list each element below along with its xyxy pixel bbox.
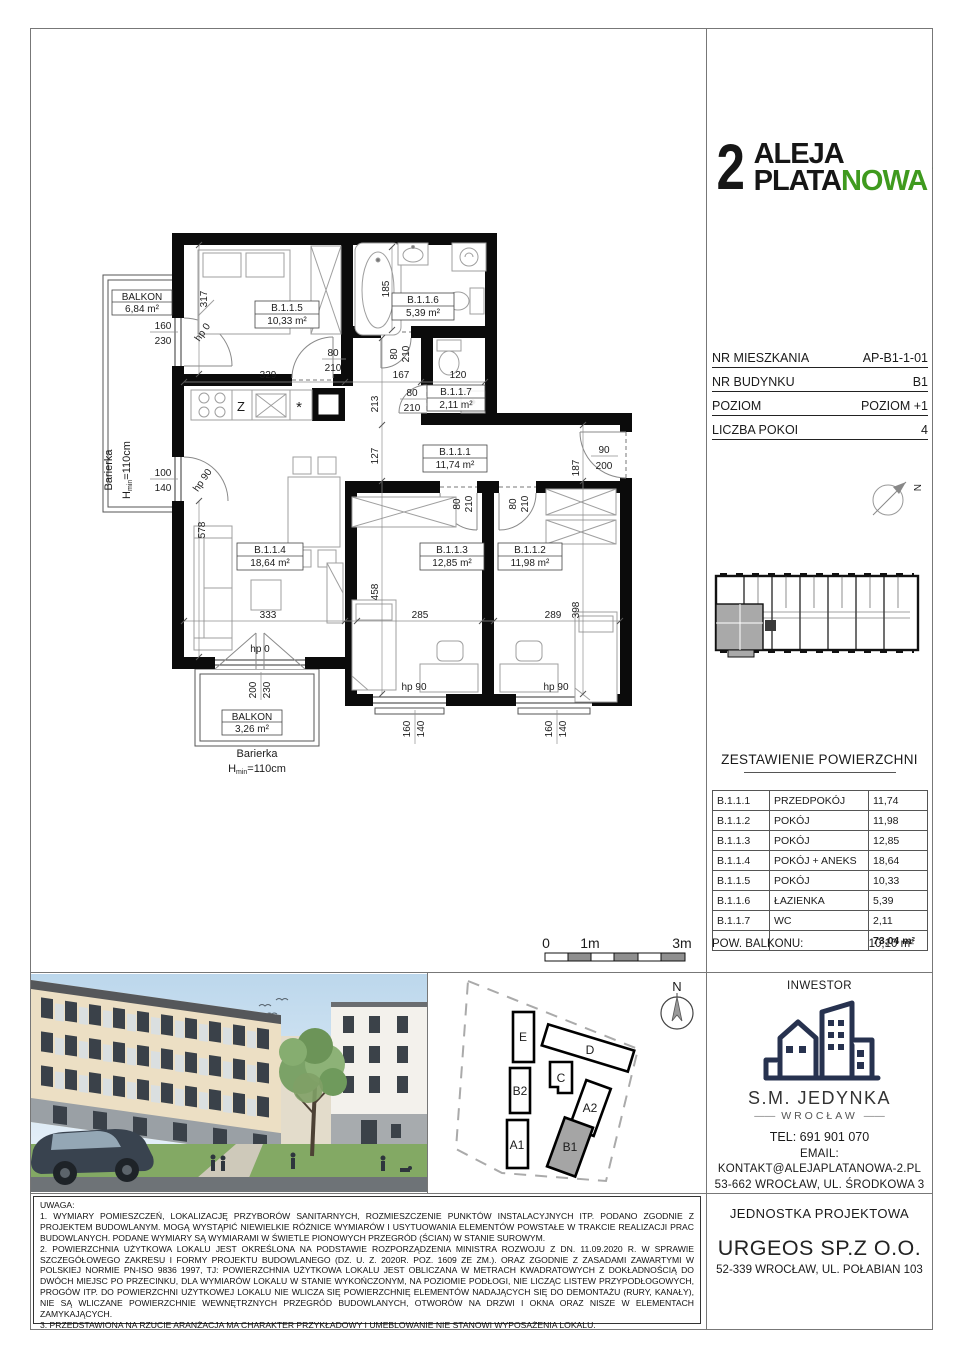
dim: 140 [155, 483, 172, 494]
kitchen-star: * [296, 399, 302, 416]
dim: 578 [197, 521, 208, 538]
dim: 285 [412, 610, 429, 621]
logo-line2-green: NOWA [841, 165, 927, 197]
areas-table-title: ZESTAWIENIE POWIERZCHNI [706, 752, 933, 767]
room-code: B.1.1.2 [713, 811, 770, 831]
kitchen-z-label: Z [237, 399, 245, 414]
dining-table [288, 477, 340, 547]
table-row: B.1.1.7WC2,11 [713, 911, 928, 931]
design-unit-address: 52-339 WROCŁAW, UL. POŁABIAN 103 [706, 1264, 933, 1276]
logo-line2-black: PLATA [754, 165, 841, 197]
info-value: 4 [921, 423, 928, 437]
info-row-apartment-number: NR MIESZKANIA AP-B1-1-01 [712, 342, 928, 368]
logo-line2: PLATANOWA [754, 168, 928, 195]
logo-number: 2 [717, 139, 745, 197]
toilet-wc [437, 340, 461, 351]
scale-3m: 3m [672, 935, 691, 951]
room-name: ŁAZIENKA [770, 891, 869, 911]
dash-left: —— [754, 1110, 775, 1122]
svg-text:B.1.1.1: B.1.1.1 [439, 447, 471, 458]
logo-line1: ALEJA [754, 141, 928, 168]
scale-0: 0 [542, 935, 550, 951]
info-row-building-number: NR BUDYNKU B1 [712, 366, 928, 392]
dim: 329 [260, 370, 277, 381]
svg-text:B.1.1.2: B.1.1.2 [514, 545, 546, 556]
dim: 160 [402, 720, 413, 737]
dim: 140 [416, 720, 427, 737]
room-area: 5,39 [869, 891, 928, 911]
svg-text:2,11 m²: 2,11 m² [439, 400, 473, 411]
dim: 210 [325, 363, 342, 374]
info-label: LICZBA POKOI [712, 423, 798, 437]
room-name: POKÓJ + ANEKS [770, 851, 869, 871]
balcony-label-bottom: BALKON 3,26 m² [222, 710, 282, 735]
investor-city: —— WROCŁAW —— [706, 1110, 933, 1122]
divider-horizontal-2 [30, 1193, 933, 1194]
svg-text:BALKON: BALKON [122, 292, 163, 303]
balcony-label-left: BALKON 6,84 m² [112, 290, 172, 315]
room-area: 12,85 [869, 831, 928, 851]
room-code: B.1.1.6 [713, 891, 770, 911]
dim: 80 [508, 498, 519, 510]
room-code: B.1.1.3 [713, 831, 770, 851]
label-a2: A2 [583, 1101, 598, 1115]
dim: 187 [571, 459, 582, 476]
room-code: B.1.1.1 [713, 791, 770, 811]
toilet-bathroom [470, 288, 484, 314]
table-row: B.1.1.4POKÓJ + ANEKS18,64 [713, 851, 928, 871]
logo-wordmark: ALEJA PLATANOWA [754, 141, 928, 194]
table-row: B.1.1.5POKÓJ10,33 [713, 871, 928, 891]
dim: 213 [370, 395, 381, 412]
svg-text:BALKON: BALKON [232, 712, 273, 723]
dim: 100 [155, 468, 172, 479]
svg-text:11,98 m²: 11,98 m² [511, 558, 550, 569]
hp-label: hp 0 [250, 644, 270, 655]
svg-text:B.1.1.7: B.1.1.7 [440, 387, 472, 398]
dim: 80 [327, 348, 339, 359]
design-unit-title: JEDNOSTKA PROJEKTOWA [706, 1206, 933, 1221]
brand-logo: 2 ALEJA PLATANOWA [708, 118, 933, 218]
building-photo [31, 974, 427, 1192]
north-arrow-icon: N [661, 979, 693, 1029]
notes-box: UWAGA: 1. WYMIARY POMIESZCZEŃ, LOKALIZAC… [33, 1196, 701, 1324]
building-overview-plan [712, 560, 926, 670]
barrier-word-horizontal: Barierka [237, 748, 279, 760]
table-row: B.1.1.6ŁAZIENKA5,39 [713, 891, 928, 911]
table-row: B.1.1.3POKÓJ12,85 [713, 831, 928, 851]
svg-text:B.1.1.6: B.1.1.6 [407, 295, 439, 306]
balcony-area-label: POW. BALKONU: [712, 938, 803, 950]
info-value: B1 [913, 375, 928, 389]
investor-name: S.M. JEDYNKA [706, 1088, 933, 1109]
tree-icon [932, 122, 933, 214]
label-d: D [586, 1043, 595, 1057]
dim: 210 [520, 495, 531, 512]
table-row: B.1.1.2POKÓJ11,98 [713, 811, 928, 831]
label-a1: A1 [510, 1138, 525, 1152]
room-label-b116: B.1.1.6 5,39 m² [392, 293, 454, 320]
room-name: WC [770, 911, 869, 931]
svg-text:B.1.1.3: B.1.1.3 [436, 545, 468, 556]
svg-text:6,84 m²: 6,84 m² [125, 304, 160, 315]
info-value: AP-B1-1-01 [863, 351, 928, 365]
floor-plan: 317 329 167 120 185 213 127 458 578 333 … [30, 28, 706, 972]
hp-label: hp 90 [401, 682, 426, 693]
investor-phone[interactable]: TEL: 691 901 070 [706, 1130, 933, 1144]
label-b1: B1 [563, 1140, 578, 1154]
room-area: 18,64 [869, 851, 928, 871]
stove-burner [199, 393, 209, 403]
areas-table: B.1.1.1PRZEDPOKÓJ11,74 B.1.1.2POKÓJ11,98… [712, 790, 928, 951]
balcony-area-value: 10,10 m² [869, 938, 914, 950]
scale-bar: 0 1m 3m [542, 935, 692, 961]
room-area: 10,33 [869, 871, 928, 891]
info-row-level: POZIOM POZIOM +1 [712, 390, 928, 416]
investor-city-label: WROCŁAW [781, 1110, 858, 1122]
dim: 120 [450, 370, 467, 381]
investor-address: 53-662 WROCŁAW, UL. ŚRODKOWA 3 [706, 1179, 933, 1191]
investor-email[interactable]: KONTAKT@ALEJAPLATANOWA-2.PL [706, 1163, 933, 1175]
scale-1m: 1m [580, 935, 599, 951]
room-code: B.1.1.7 [713, 911, 770, 931]
info-label: NR BUDYNKU [712, 375, 795, 389]
coffee-table [251, 580, 281, 610]
info-label: NR MIESZKANIA [712, 351, 809, 365]
dim: 333 [260, 610, 277, 621]
dim: 210 [464, 495, 475, 512]
dim: 458 [370, 583, 381, 600]
investor-email-label: EMAIL: [706, 1148, 933, 1160]
room-name: POKÓJ [770, 811, 869, 831]
dim: 185 [381, 280, 392, 297]
svg-text:3,26 m²: 3,26 m² [235, 724, 270, 735]
desk-chair [516, 641, 542, 661]
table-row: B.1.1.1PRZEDPOKÓJ11,74 [713, 791, 928, 811]
dim: 80 [452, 498, 463, 510]
tv-cabinet [327, 563, 343, 623]
dim: 230 [155, 336, 172, 347]
room-label-b117: B.1.1.7 2,11 m² [427, 385, 485, 411]
room-area: 11,98 [869, 811, 928, 831]
dim: 160 [544, 720, 555, 737]
room-label-b115: B.1.1.5 10,33 m² [255, 301, 319, 328]
svg-text:10,33 m²: 10,33 m² [267, 316, 307, 327]
chair [293, 457, 311, 474]
compass-letter: N [911, 484, 922, 491]
info-value: POZIOM +1 [861, 399, 928, 413]
north-letter: N [672, 979, 681, 994]
note-2: 2. POWIERZCHNIA UŻYTKOWA LOKALU JEST OKR… [40, 1244, 694, 1320]
dim: 140 [558, 720, 569, 737]
dim: 90 [598, 445, 610, 456]
room-area: 11,74 [869, 791, 928, 811]
label-e: E [519, 1030, 527, 1044]
balcony-area-row: POW. BALKONU: 10,10 m² [712, 938, 928, 950]
dash-right: —— [864, 1110, 885, 1122]
dim: 200 [248, 681, 259, 698]
site-plan: E B2 A1 D C A2 B1 N [428, 973, 706, 1192]
dim: 200 [596, 461, 613, 472]
room-code: B.1.1.5 [713, 871, 770, 891]
dim: 210 [404, 403, 421, 414]
shaft [318, 394, 339, 415]
room-name: PRZEDPOKÓJ [770, 791, 869, 811]
note-1: 1. WYMIARY POMIESZCZEŃ, LOKALIZACJĘ PRZY… [40, 1211, 694, 1244]
barrier-word-vertical: Barierka [103, 449, 115, 491]
room-name: POKÓJ [770, 871, 869, 891]
dim: 210 [401, 345, 412, 362]
dim: 289 [545, 610, 562, 621]
svg-text:11,74 m²: 11,74 m² [436, 460, 475, 471]
info-row-room-count: LICZBA POKOI 4 [712, 414, 928, 440]
svg-text:B.1.1.4: B.1.1.4 [254, 545, 286, 556]
hp-label: hp 90 [191, 467, 215, 494]
dim: 80 [389, 348, 400, 360]
desk [420, 664, 478, 692]
room-code: B.1.1.4 [713, 851, 770, 871]
label-c: C [557, 1071, 566, 1085]
investor-logo-buildings-icon [758, 998, 882, 1084]
dim: 127 [370, 447, 381, 464]
room-label-b113: B.1.1.3 12,85 m² [420, 543, 484, 570]
room-label-b111: B.1.1.1 11,74 m² [423, 445, 487, 472]
room-label-b112: B.1.1.2 11,98 m² [498, 543, 562, 570]
label-b2: B2 [513, 1084, 528, 1098]
road [31, 1177, 427, 1192]
barrier-height-horizontal: Hmin=110cm [228, 763, 286, 776]
note-3: 3. PRZEDSTAWIONA NA RZUCIE ARANŻACJA MA … [40, 1320, 694, 1331]
hp-label: hp 90 [543, 682, 568, 693]
investor-title: INWESTOR [706, 980, 933, 992]
room-name: POKÓJ [770, 831, 869, 851]
desk-chair [437, 641, 463, 661]
dim: 160 [155, 321, 172, 332]
dim: 80 [406, 388, 418, 399]
dim: 230 [262, 681, 273, 698]
svg-text:12,85 m²: 12,85 m² [432, 558, 472, 569]
room-label-b114: B.1.1.4 18,64 m² [237, 543, 303, 570]
notes-title: UWAGA: [40, 1200, 694, 1211]
design-unit-name: URGEOS SP.Z O.O. [706, 1236, 933, 1261]
site-boundary [456, 981, 638, 1181]
apartment-card-page: 2 ALEJA PLATANOWA NR MIESZKANIA AP-B1-1-… [0, 0, 963, 1362]
areas-title-underline [744, 772, 896, 773]
svg-text:B.1.1.5: B.1.1.5 [271, 303, 303, 314]
dim: 167 [393, 370, 410, 381]
info-label: POZIOM [712, 399, 761, 413]
svg-text:18,64 m²: 18,64 m² [250, 558, 290, 569]
dim: 317 [199, 290, 210, 307]
svg-text:5,39 m²: 5,39 m² [406, 308, 441, 319]
compass-icon: N [860, 472, 926, 532]
dim: 398 [571, 601, 582, 618]
room-area: 2,11 [869, 911, 928, 931]
